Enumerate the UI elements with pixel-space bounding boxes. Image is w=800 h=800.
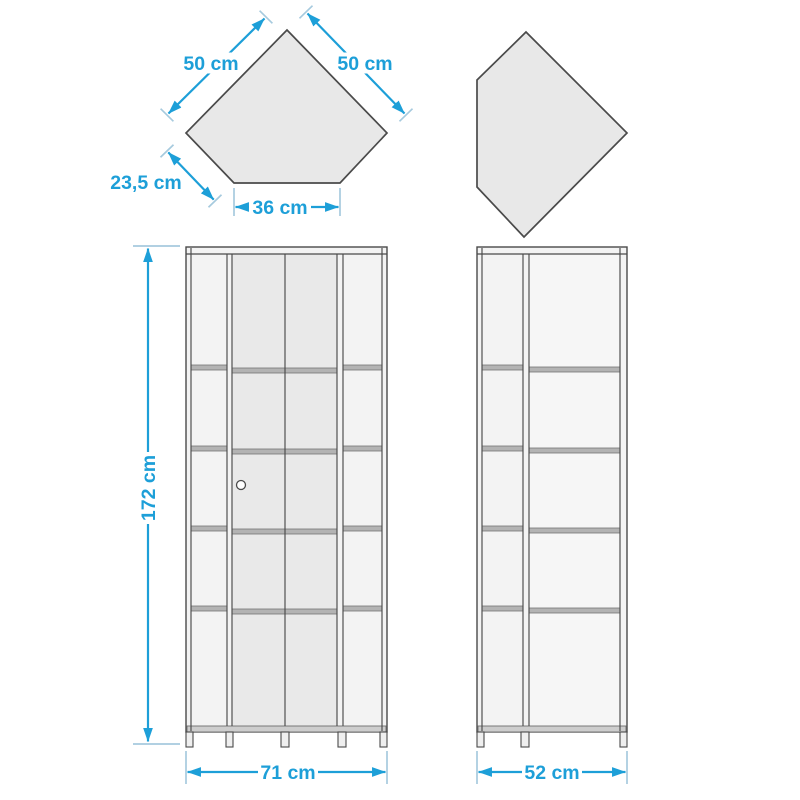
dim-label-50-left: 50 cm — [183, 53, 238, 75]
dimension-diagram: 50 cm 50 cm 23,5 cm 36 cm — [0, 0, 800, 800]
top-view-rotated-shape — [477, 32, 627, 237]
side-panel — [529, 254, 620, 726]
cabinet-foot — [620, 732, 627, 747]
shelf-line — [482, 365, 523, 370]
top-view-rotated — [477, 32, 627, 237]
shelf-line — [343, 446, 382, 451]
side-view: 52 cm — [477, 247, 627, 784]
dim-width-52: 52 cm — [477, 751, 627, 784]
door-knob — [237, 481, 246, 490]
shelf-line — [482, 446, 523, 451]
shelf-line — [529, 448, 620, 453]
dim-label-52: 52 cm — [524, 762, 579, 784]
shelf-line — [343, 606, 382, 611]
shelf-line — [529, 608, 620, 613]
shelf-line — [343, 526, 382, 531]
shelf-line — [482, 526, 523, 531]
bottom-rail — [187, 726, 386, 732]
cabinet-foot — [281, 732, 289, 747]
dim-edge-23-5: 23,5 cm — [110, 145, 221, 207]
cabinet-foot — [380, 732, 387, 747]
dim-label-36: 36 cm — [252, 197, 307, 219]
shelf-line — [482, 606, 523, 611]
dim-edge-36: 36 cm — [234, 188, 340, 219]
shelf-line — [191, 606, 227, 611]
shelf-line — [191, 526, 227, 531]
shelf-line — [191, 446, 227, 451]
shelf-line — [343, 365, 382, 370]
diagram-svg: 50 cm 50 cm 23,5 cm 36 cm — [0, 0, 800, 800]
dim-label-71: 71 cm — [260, 762, 315, 784]
cabinet-feet — [477, 732, 627, 747]
dim-height-172: 172 cm — [133, 246, 180, 744]
dim-label-50-right: 50 cm — [337, 53, 392, 75]
shelf-line — [529, 367, 620, 372]
shelf-line — [529, 528, 620, 533]
front-view: 172 cm 71 cm — [133, 246, 387, 784]
cabinet-feet — [186, 732, 387, 747]
cabinet-foot — [226, 732, 233, 747]
cabinet-foot — [338, 732, 346, 747]
dim-width-71: 71 cm — [186, 751, 387, 784]
cabinet-foot — [477, 732, 484, 747]
dim-label-23-5: 23,5 cm — [110, 172, 182, 194]
bottom-rail — [478, 726, 626, 732]
dim-label-172: 172 cm — [138, 455, 160, 521]
shelf-line — [191, 365, 227, 370]
top-view-plan: 50 cm 50 cm 23,5 cm 36 cm — [110, 6, 412, 219]
cabinet-foot — [186, 732, 193, 747]
cabinet-foot — [521, 732, 529, 747]
